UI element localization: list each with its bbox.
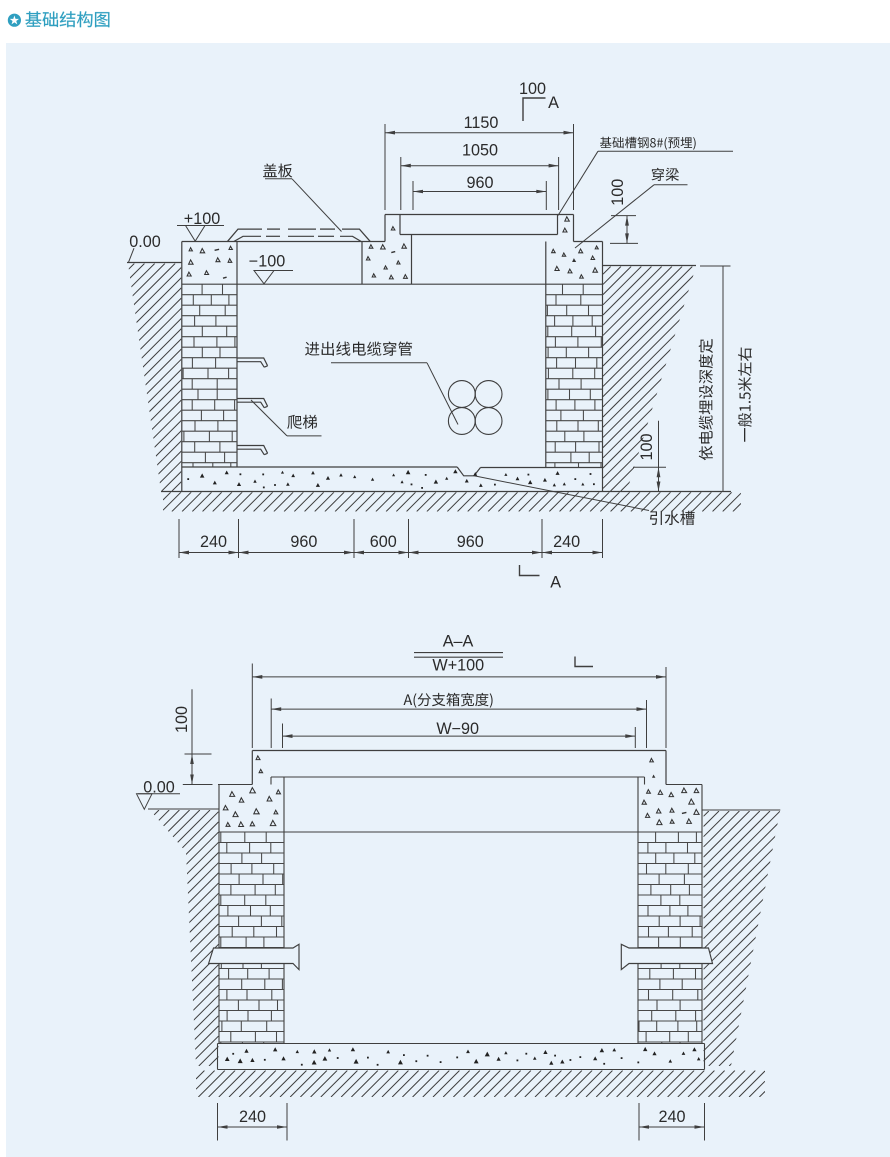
svg-text:240: 240 xyxy=(200,533,227,551)
svg-text:A–A: A–A xyxy=(443,633,474,651)
svg-text:600: 600 xyxy=(370,533,397,551)
svg-text:100: 100 xyxy=(519,80,546,98)
svg-text:960: 960 xyxy=(290,533,317,551)
svg-text:960: 960 xyxy=(457,533,484,551)
svg-text:100: 100 xyxy=(609,179,627,206)
svg-text:100: 100 xyxy=(173,706,191,733)
svg-text:W+100: W+100 xyxy=(432,656,484,674)
svg-text:1150: 1150 xyxy=(464,114,499,132)
svg-text:A: A xyxy=(550,574,561,592)
svg-text:−100: −100 xyxy=(249,253,285,271)
svg-text:A: A xyxy=(548,94,559,112)
svg-text:960: 960 xyxy=(466,174,493,192)
svg-text:240: 240 xyxy=(553,533,580,551)
svg-text:240: 240 xyxy=(239,1108,266,1126)
svg-text:100: 100 xyxy=(638,433,656,460)
svg-text:1050: 1050 xyxy=(462,142,498,160)
svg-text:240: 240 xyxy=(658,1108,685,1126)
svg-text:W−90: W−90 xyxy=(436,720,479,738)
